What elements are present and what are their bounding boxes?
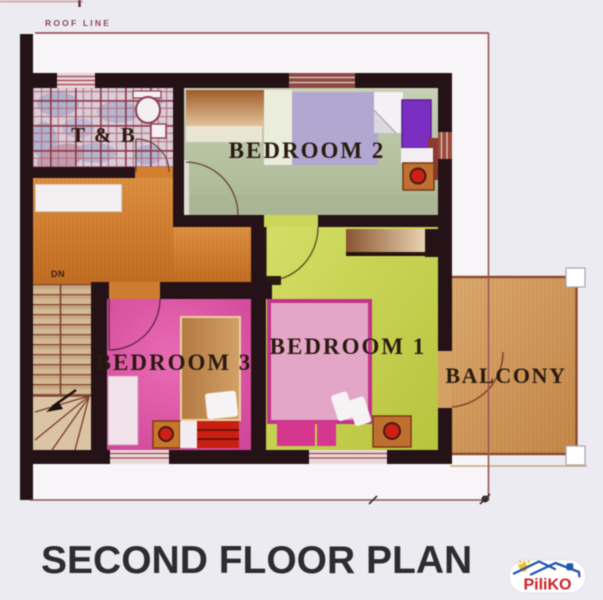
svg-text:BEDROOM 3: BEDROOM 3 [96, 350, 253, 375]
svg-text:ROOF LINE: ROOF LINE [45, 18, 111, 28]
svg-text:BALCONY: BALCONY [445, 363, 566, 388]
svg-text:T & B: T & B [71, 123, 137, 147]
svg-text:PiliKO: PiliKO [523, 577, 571, 594]
svg-text:DN: DN [51, 269, 65, 279]
svg-text:BEDROOM 2: BEDROOM 2 [229, 138, 386, 163]
svg-text:SECOND FLOOR PLAN: SECOND FLOOR PLAN [41, 539, 472, 582]
svg-text:BEDROOM 1: BEDROOM 1 [270, 334, 427, 359]
